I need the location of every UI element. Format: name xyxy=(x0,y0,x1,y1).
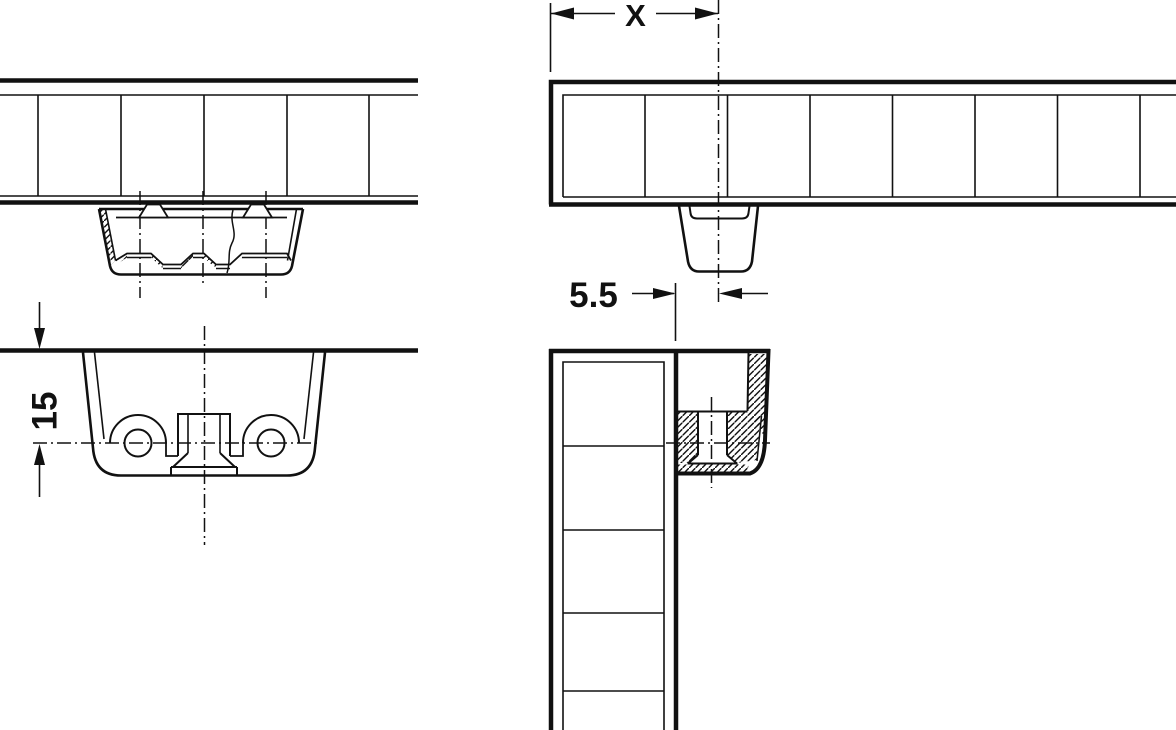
section-hatching xyxy=(677,354,768,472)
arrow-left-icon xyxy=(551,8,574,20)
inner-wall-line xyxy=(748,353,749,411)
plug-collar-line xyxy=(690,206,750,219)
technical-drawing-canvas: 15 X 5.5 xyxy=(0,0,1176,730)
fitting-front-view xyxy=(0,326,418,545)
dim15-label: 15 xyxy=(26,392,65,431)
arrow-right-icon xyxy=(653,288,676,299)
arrow-down-icon xyxy=(34,328,45,349)
anchor-tabs xyxy=(139,205,272,218)
teeth-slant-hatching xyxy=(116,254,243,269)
dim55-label: 5.5 xyxy=(569,276,618,315)
fitting-outline xyxy=(99,209,303,275)
technical-drawing-page: 15 X 5.5 xyxy=(0,0,1176,730)
fitting-side-view xyxy=(99,191,303,298)
vpanel-inner-lines xyxy=(563,362,664,730)
top-right-panel-section-view xyxy=(549,82,1176,205)
top-left-panel-section-view xyxy=(0,81,418,203)
dowel-plug-side-view xyxy=(679,0,758,303)
dimension-x: X xyxy=(551,0,719,72)
arrow-right-icon xyxy=(695,8,718,20)
panel-inner-top xyxy=(563,95,1176,197)
housing-inner-left xyxy=(95,353,105,440)
front-view-centerlines xyxy=(33,326,318,545)
arrow-up-icon xyxy=(34,444,45,465)
dimension-5-5: 5.5 xyxy=(569,276,768,341)
housing-inner-right xyxy=(304,353,314,440)
right-notch xyxy=(230,443,243,456)
arrow-left-icon xyxy=(719,288,742,299)
vpanel-core-dividers xyxy=(563,446,664,691)
countersink-lines xyxy=(688,455,737,464)
panel-core-dividers xyxy=(38,95,369,196)
dimension-15: 15 xyxy=(26,302,65,497)
dimx-label: X xyxy=(625,0,646,33)
cross-section-view xyxy=(549,349,770,730)
left-notch xyxy=(166,443,178,456)
